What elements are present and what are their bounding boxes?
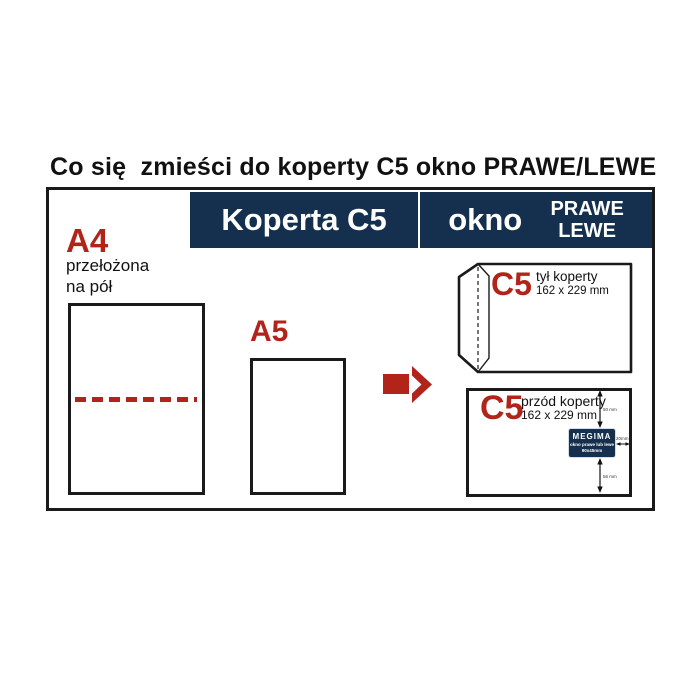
product-name-label: Koperta C5 xyxy=(190,192,418,248)
a4-note: przełożona na pół xyxy=(66,255,149,298)
envelope-back-format-label: C5 xyxy=(491,268,532,300)
window-word-label: okno xyxy=(448,202,522,238)
window-type-left: LEWE xyxy=(558,220,616,242)
arrow-chevron xyxy=(412,366,432,403)
window-type-cell: okno PRAWE LEWE xyxy=(420,192,652,248)
a5-sheet-outline xyxy=(250,358,346,495)
page-title: Co się zmieści do koperty C5 okno PRAWE/… xyxy=(50,153,656,182)
a4-sheet-outline xyxy=(68,303,205,495)
header-bar: Koperta C5 okno PRAWE LEWE xyxy=(190,192,652,248)
right-arrow-icon xyxy=(382,364,434,406)
window-sticker: MEGIMA okno prawe lub lewe 90x45mm xyxy=(568,428,616,458)
a4-note-line1: przełożona xyxy=(66,255,149,276)
envelope-front-size-label: 162 x 229 mm xyxy=(521,409,597,421)
window-type-right: PRAWE xyxy=(550,198,623,220)
sticker-size-label: 90x45mm xyxy=(582,448,603,454)
envelope-front-side-label: przód koperty xyxy=(521,394,606,408)
envelope-infographic: Co się zmieści do koperty C5 okno PRAWE/… xyxy=(0,0,700,700)
envelope-back-side-label: tył koperty xyxy=(536,270,598,284)
arrow-bar xyxy=(383,374,409,394)
a5-label: A5 xyxy=(250,317,288,347)
window-type-stack: PRAWE LEWE xyxy=(550,198,623,242)
a4-fold-dashed-line xyxy=(75,397,197,402)
envelope-back-size-label: 162 x 229 mm xyxy=(536,286,609,298)
sticker-brand-label: MEGIMA xyxy=(573,432,612,442)
a4-note-line2: na pół xyxy=(66,276,149,297)
envelope-front-format-label: C5 xyxy=(480,391,523,425)
a4-label: A4 xyxy=(66,224,108,257)
